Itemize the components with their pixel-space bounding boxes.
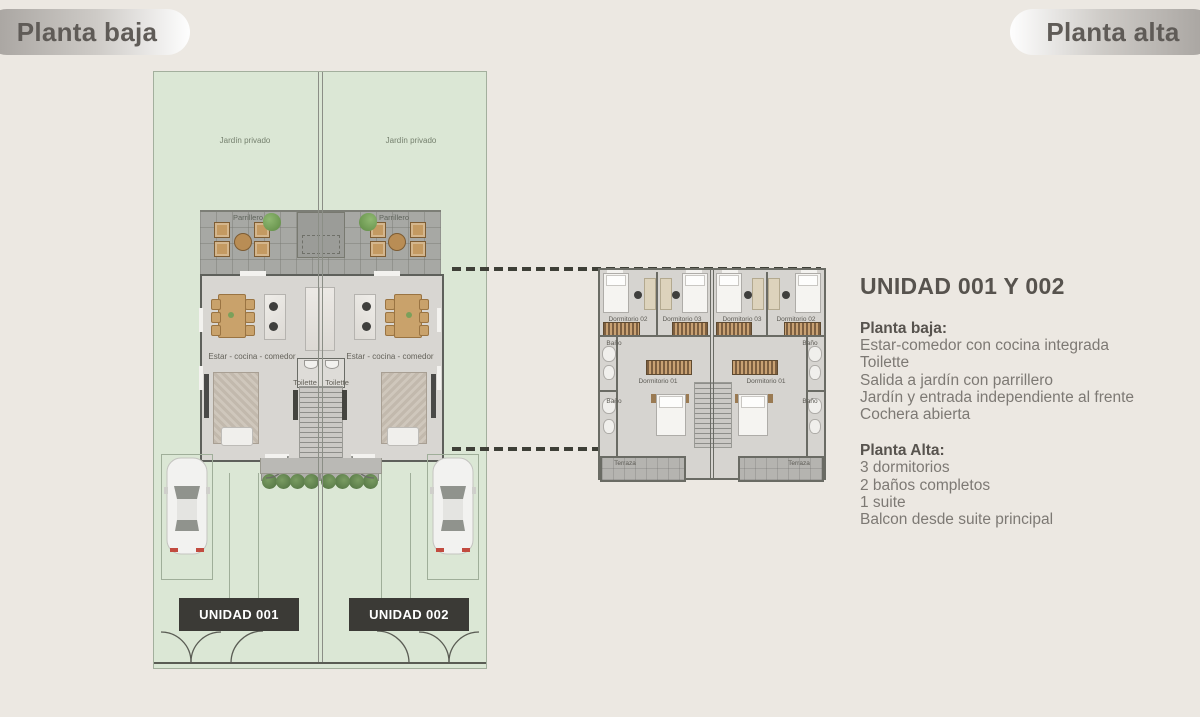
- unit-001-badge: UNIDAD 001: [179, 598, 299, 631]
- parrillero-label-unit-002: Parrillero: [379, 213, 409, 222]
- terrace-label-unit-001: Terraza: [614, 460, 636, 467]
- wardrobe: [732, 360, 778, 375]
- toilette-label-unit-002: Toilette: [325, 378, 349, 387]
- upper-floor-feature: 3 dormitorios: [860, 459, 1195, 476]
- upper-floor-heading: Planta Alta:: [860, 442, 1195, 459]
- entry-porch: [260, 458, 382, 474]
- bedroom-divider-wall: [766, 272, 768, 335]
- toilet: [603, 419, 615, 434]
- ground-floor-feature: Salida a jardín con parrillero: [860, 372, 1195, 389]
- stair-rail: [342, 390, 347, 420]
- bedroom-divider-wall: [656, 272, 658, 335]
- unit-001-badge-label: UNIDAD 001: [199, 607, 279, 622]
- parrillero-label-unit-001: Parrillero: [233, 213, 263, 222]
- staircase: [299, 386, 343, 460]
- desk: [644, 278, 656, 310]
- garden-label-unit-001: Jardín privado: [220, 136, 271, 145]
- bed-pillow: [685, 275, 705, 286]
- terrace-deck: [738, 456, 824, 482]
- bedroom2-label-unit-001: Dormitorio 02: [608, 316, 647, 323]
- toilet: [809, 419, 821, 434]
- upper-floor-feature: 1 suite: [860, 494, 1195, 511]
- desk-chair: [782, 291, 790, 299]
- bath-top-label-unit-002: Baño: [802, 340, 817, 347]
- toilette-sink: [304, 360, 318, 369]
- terrace-label-unit-002: Terraza: [788, 460, 810, 467]
- living-label-unit-001: Estar - cocina - comedor: [208, 352, 295, 361]
- toilette-label-unit-001: Toilette: [293, 378, 317, 387]
- living-label-unit-002: Estar - cocina - comedor: [346, 352, 433, 361]
- ground-floor-pill-label: Planta baja: [17, 17, 158, 48]
- unit-002-badge: UNIDAD 002: [349, 598, 469, 631]
- bed-pillow: [606, 275, 626, 286]
- ground-floor-feature: Jardín y entrada independiente al frente: [860, 389, 1195, 406]
- bedroom1-label-unit-002: Dormitorio 01: [746, 378, 785, 385]
- bed-pillow: [798, 275, 818, 286]
- upper-floor-plan: Dormitorio 02 Dormitorio 03 Dormitorio 0…: [598, 268, 826, 480]
- interior-wall: [600, 390, 618, 392]
- bedroom2-label-unit-002: Dormitorio 02: [776, 316, 815, 323]
- party-wall: [710, 270, 711, 478]
- upper-floor-pill: Planta alta: [1010, 9, 1200, 55]
- upper-floor-feature: 2 baños completos: [860, 477, 1195, 494]
- bed-pillow: [741, 396, 765, 408]
- ground-floor-feature: Cochera abierta: [860, 406, 1195, 423]
- unit-001-graphics: [154, 72, 320, 668]
- desk-chair: [672, 291, 680, 299]
- bath-bottom-label-unit-001: Baño: [606, 398, 621, 405]
- ground-floor-pill: Planta baja: [0, 9, 190, 55]
- toilet: [809, 365, 821, 380]
- bedroom3-label-unit-002: Dormitorio 03: [722, 316, 761, 323]
- lot-divider-line: [318, 72, 319, 662]
- desk: [768, 278, 780, 310]
- unit-002-badge-label: UNIDAD 002: [369, 607, 449, 622]
- desk: [660, 278, 672, 310]
- desk-chair: [744, 291, 752, 299]
- desk: [752, 278, 764, 310]
- ground-floor-feature: Toilette: [860, 354, 1195, 371]
- party-wall: [713, 270, 714, 478]
- info-title: UNIDAD 001 Y 002: [860, 274, 1195, 299]
- interior-wall: [806, 390, 824, 392]
- lot-divider-line: [322, 72, 323, 662]
- upper-floor-feature: Balcon desde suite principal: [860, 511, 1195, 528]
- upper-floor-pill-label: Planta alta: [1046, 17, 1179, 48]
- info-panel: UNIDAD 001 Y 002 Planta baja: Estar-come…: [860, 274, 1195, 528]
- front-fence-line: [154, 662, 486, 664]
- garden-label-unit-002: Jardín privado: [386, 136, 437, 145]
- ground-floor-heading: Planta baja:: [860, 320, 1195, 337]
- terrace-deck: [600, 456, 686, 482]
- wardrobe: [646, 360, 692, 375]
- ground-floor-plan: Jardín privado Jardín privado Parrillero…: [153, 71, 487, 669]
- bed-pillow: [659, 396, 683, 408]
- bath-bottom-label-unit-002: Baño: [802, 398, 817, 405]
- bathroom-wall: [616, 337, 618, 456]
- toilet: [603, 365, 615, 380]
- bed-pillow: [719, 275, 739, 286]
- bathroom-sink: [808, 346, 822, 362]
- nightstand: [768, 394, 773, 403]
- bath-top-label-unit-001: Baño: [606, 340, 621, 347]
- door-swing-arcs: [154, 72, 320, 668]
- bedroom1-label-unit-001: Dormitorio 01: [638, 378, 677, 385]
- desk-chair: [634, 291, 642, 299]
- bedroom3-label-unit-001: Dormitorio 03: [662, 316, 701, 323]
- bathroom-sink: [602, 346, 616, 362]
- ground-floor-feature: Estar-comedor con cocina integrada: [860, 337, 1195, 354]
- stair-rail: [293, 390, 298, 420]
- toilette-sink: [325, 360, 339, 369]
